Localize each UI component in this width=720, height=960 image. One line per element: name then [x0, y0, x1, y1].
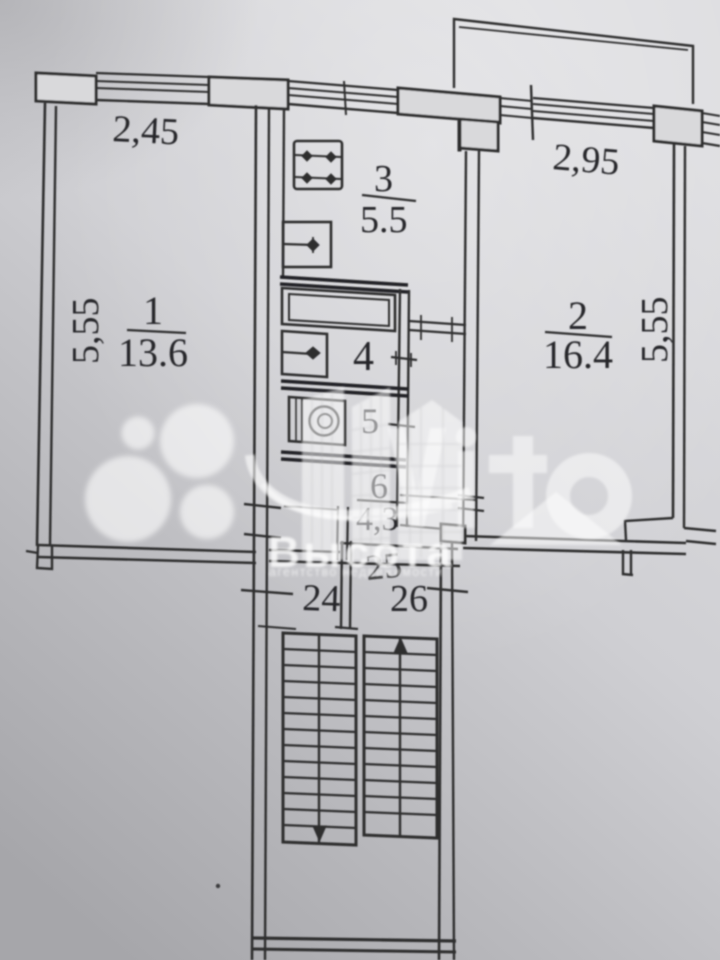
- svg-text:4: 4: [353, 334, 374, 380]
- svg-text:13.6: 13.6: [118, 330, 188, 375]
- svg-text:5,55: 5,55: [634, 297, 676, 364]
- svg-text:26: 26: [390, 578, 428, 620]
- svg-text:24: 24: [302, 577, 341, 620]
- svg-text:5,55: 5,55: [65, 298, 107, 365]
- svg-text:5.5: 5.5: [360, 199, 408, 241]
- svg-text:агентство недвижимости: агентство недвижимости: [269, 565, 444, 579]
- svg-text:2,95: 2,95: [551, 136, 621, 184]
- svg-text:16.4: 16.4: [543, 332, 613, 377]
- svg-text:2,45: 2,45: [112, 108, 181, 153]
- svg-text:3: 3: [374, 158, 393, 200]
- svg-text:1: 1: [143, 288, 163, 333]
